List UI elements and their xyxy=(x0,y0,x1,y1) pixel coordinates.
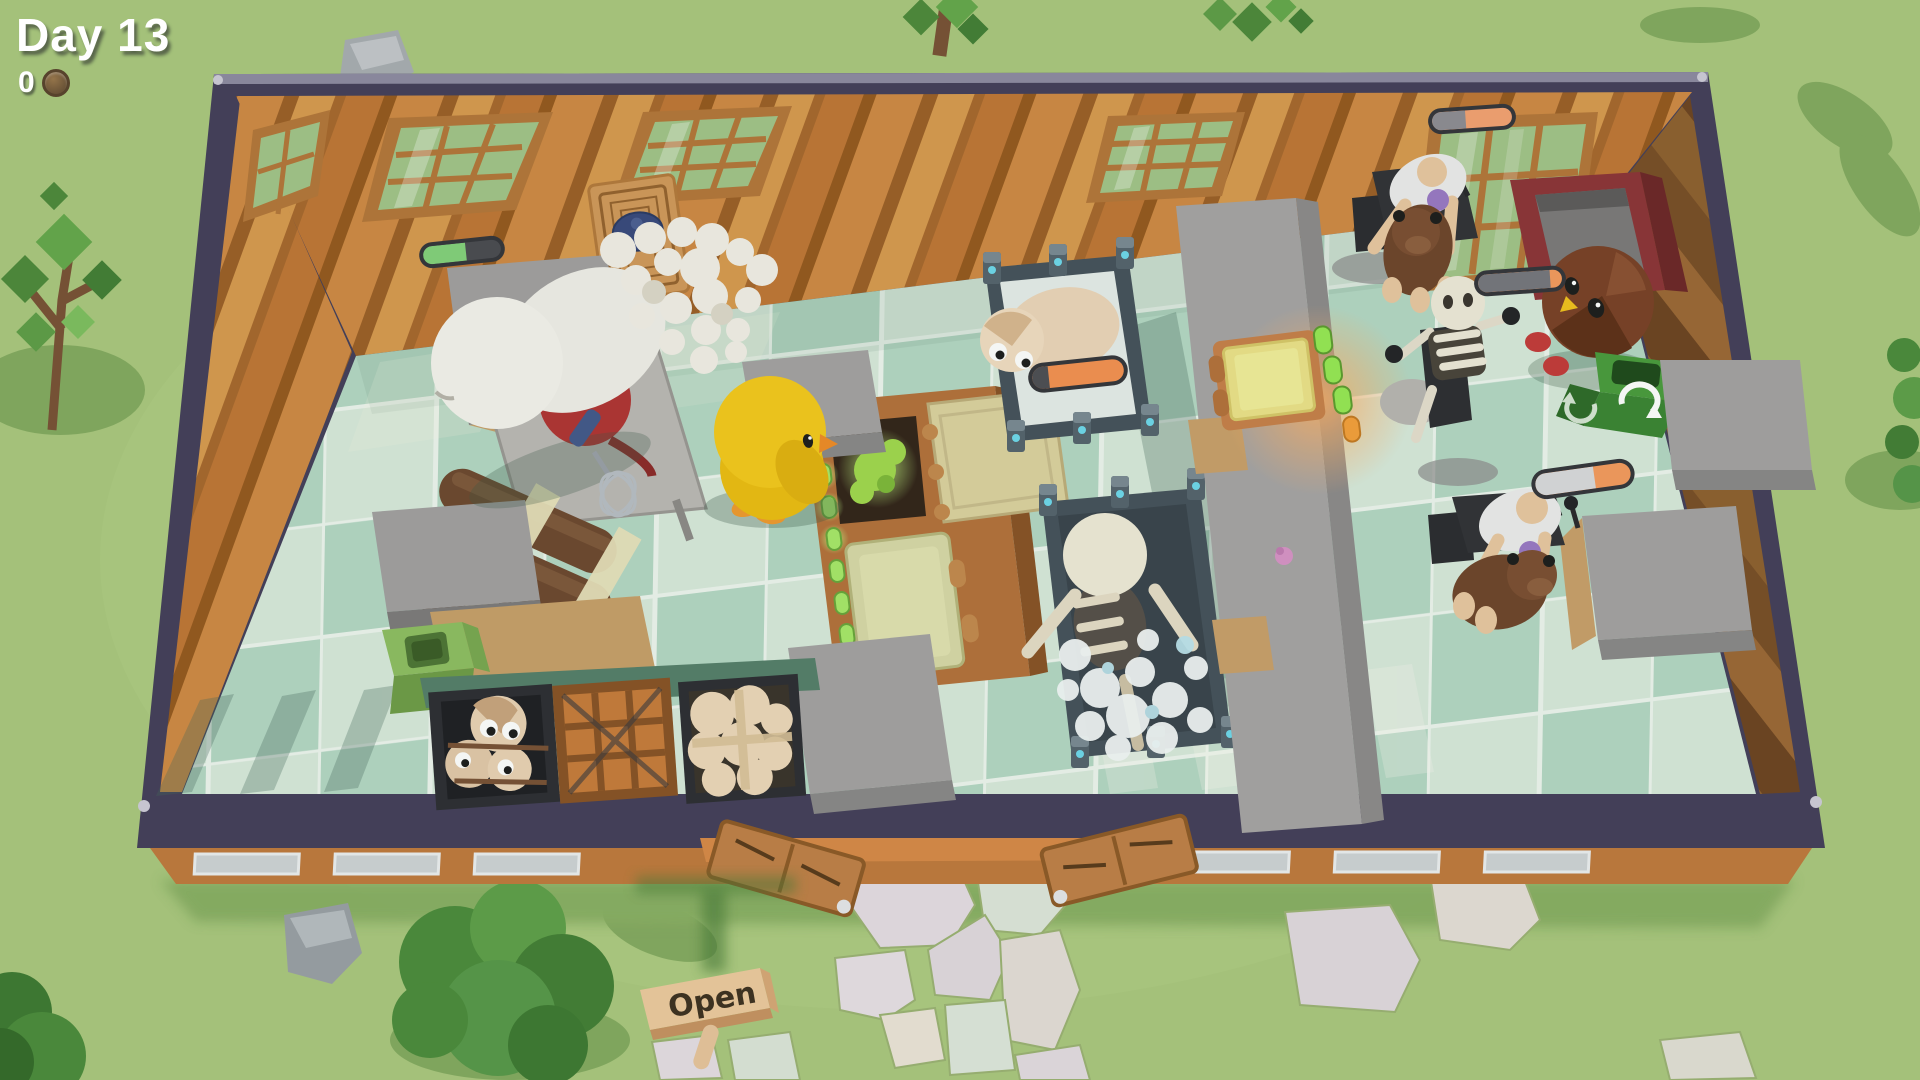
hud: Day 13 0 xyxy=(16,8,170,100)
game-viewport[interactable]: Open Day 13 0 xyxy=(0,0,1920,1080)
coin-icon xyxy=(42,69,70,97)
coin-row: 0 xyxy=(18,66,170,100)
day-counter: Day 13 xyxy=(16,8,170,62)
coin-count: 0 xyxy=(18,66,35,100)
vignette xyxy=(0,0,1920,1080)
